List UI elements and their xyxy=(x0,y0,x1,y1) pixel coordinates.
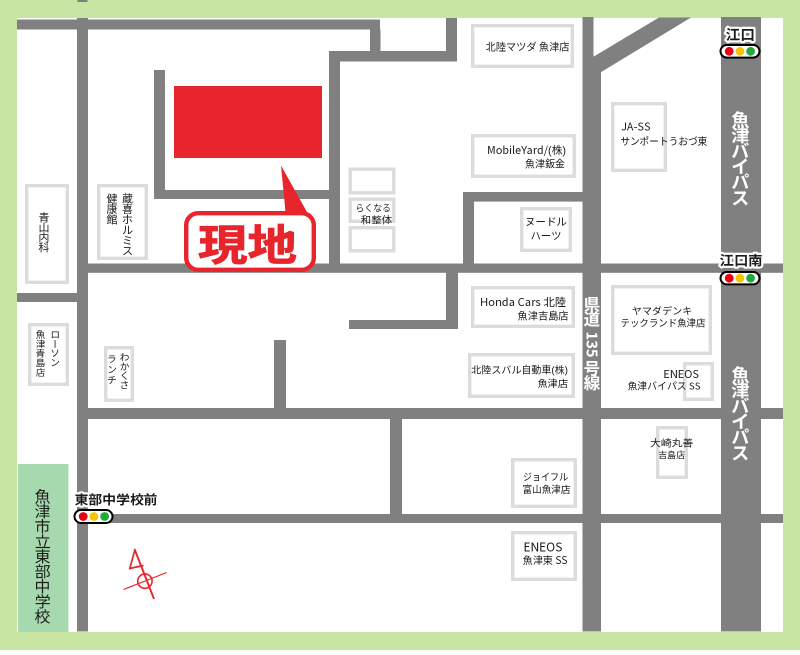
svg-text:魚津鈑金: 魚津鈑金 xyxy=(525,157,565,172)
svg-text:吉島店: 吉島店 xyxy=(658,448,685,462)
svg-text:魚津市立東部中学校: 魚津市立東部中学校 xyxy=(35,483,51,627)
svg-text:魚津バイパス SS: 魚津バイパス SS xyxy=(628,378,701,393)
svg-text:和整体: 和整体 xyxy=(361,212,393,227)
svg-text:青山内科: 青山内科 xyxy=(39,209,50,255)
svg-text:JA-SS: JA-SS xyxy=(621,119,651,135)
svg-text:ヌードル: ヌードル xyxy=(525,215,567,230)
svg-text:魚津バイパス: 魚津バイパス xyxy=(731,361,749,465)
svg-text:テックランド魚津店: テックランド魚津店 xyxy=(621,315,706,330)
svg-text:サンポートうおづ東: サンポートうおづ東 xyxy=(620,134,707,149)
svg-text:江口: 江口 xyxy=(726,24,755,45)
svg-text:北陸マツダ 魚津店: 北陸マツダ 魚津店 xyxy=(486,40,570,55)
svg-text:3: 3 xyxy=(582,340,603,349)
svg-text:ハーツ: ハーツ xyxy=(531,229,562,244)
svg-text:魚津吉島店: 魚津吉島店 xyxy=(518,308,569,323)
svg-text:江口南: 江口南 xyxy=(720,251,763,271)
svg-text:5: 5 xyxy=(582,348,603,358)
svg-text:わかくさ: わかくさ xyxy=(120,350,130,392)
svg-text:魚津バイパス: 魚津バイパス xyxy=(731,106,749,210)
svg-text:MobileYard/(株): MobileYard/(株) xyxy=(487,142,566,158)
svg-text:現地: 現地 xyxy=(198,212,297,274)
svg-text:魚津青島店: 魚津青島店 xyxy=(36,327,46,379)
svg-text:ソン: ソン xyxy=(50,346,60,369)
svg-text:東部中学校前: 東部中学校前 xyxy=(75,490,158,509)
svg-text:健康館: 健康館 xyxy=(106,191,118,228)
svg-text:ランチ: ランチ xyxy=(107,351,117,386)
svg-text:魚津店: 魚津店 xyxy=(538,375,569,390)
svg-text:魚津東 SS: 魚津東 SS xyxy=(523,553,568,568)
svg-text:富山魚津店: 富山魚津店 xyxy=(523,481,571,496)
svg-text:蔵喜ホルミス: 蔵喜ホルミス xyxy=(122,191,133,259)
